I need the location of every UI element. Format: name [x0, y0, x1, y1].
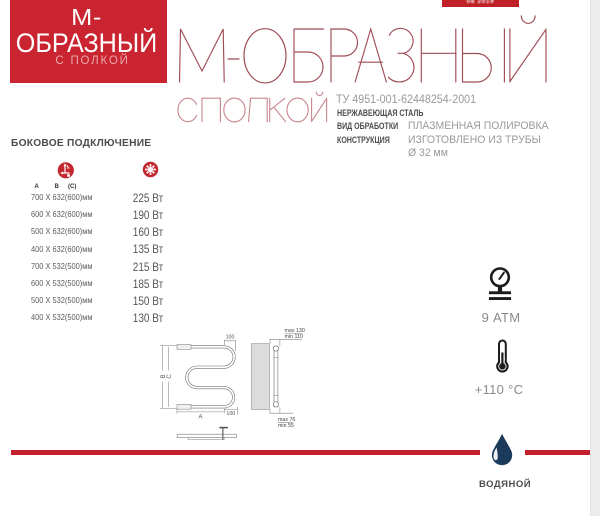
svg-text:100: 100	[226, 335, 235, 341]
svg-text:min 110: min 110	[285, 334, 304, 340]
svg-text:100: 100	[226, 411, 235, 417]
svg-text:А: А	[198, 414, 202, 420]
svg-text:min 55: min 55	[278, 423, 294, 429]
svg-text:С: С	[167, 374, 173, 379]
svg-text:В: В	[161, 374, 167, 378]
